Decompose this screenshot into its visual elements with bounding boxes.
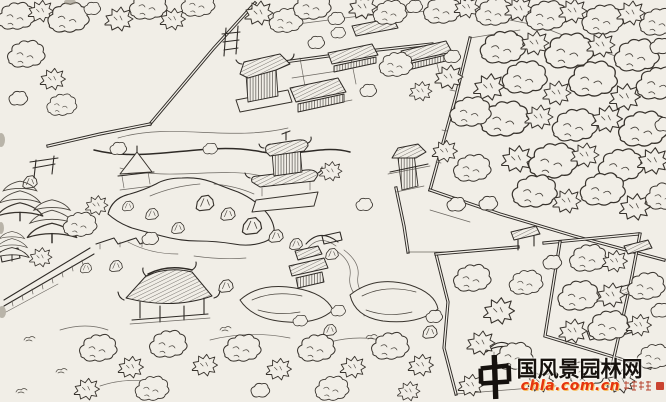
tree xyxy=(512,175,557,207)
tree xyxy=(105,7,133,31)
east-tower xyxy=(388,144,430,192)
grass-tuft xyxy=(220,327,231,332)
rock xyxy=(122,201,133,211)
tree xyxy=(454,264,492,291)
tree xyxy=(467,331,495,355)
tree xyxy=(349,0,377,19)
tree xyxy=(650,38,666,53)
torii-gate xyxy=(30,156,58,178)
pine-tree xyxy=(0,231,29,261)
tree xyxy=(331,27,346,38)
tree xyxy=(408,354,433,376)
tree xyxy=(454,154,492,181)
tree xyxy=(479,196,498,210)
tree xyxy=(142,232,159,244)
rockery xyxy=(23,176,438,339)
rock xyxy=(242,218,261,235)
rock xyxy=(110,260,123,271)
tree xyxy=(331,305,346,316)
trees-right-forest xyxy=(474,31,666,220)
tree xyxy=(360,84,377,96)
tree xyxy=(328,12,345,24)
zhong-logo-icon xyxy=(473,352,517,401)
tree xyxy=(84,2,101,14)
rock-mound xyxy=(350,282,438,322)
tree xyxy=(9,91,28,105)
garden-sketch-page: 国风景园林网 chla.com.cn xyxy=(0,0,666,402)
tree xyxy=(447,197,466,211)
grass-tuft xyxy=(56,369,67,374)
main-pavilion xyxy=(245,131,322,212)
tree xyxy=(30,248,52,267)
tree xyxy=(558,281,599,311)
tree xyxy=(308,36,325,48)
tree xyxy=(379,52,413,76)
tree xyxy=(356,198,373,210)
pine-tree xyxy=(0,181,43,221)
tree xyxy=(135,376,169,400)
tree xyxy=(372,332,410,359)
tree xyxy=(251,383,270,397)
tree xyxy=(636,67,666,99)
watermark-text: 国风景园林网 chla.com.cn xyxy=(517,359,664,395)
tree xyxy=(340,356,365,378)
tree xyxy=(502,61,547,93)
tree xyxy=(502,146,533,172)
tree xyxy=(559,319,587,343)
tree xyxy=(602,250,627,272)
tree xyxy=(63,212,97,236)
gate-tower-left xyxy=(236,54,294,112)
rock xyxy=(290,238,303,249)
tree xyxy=(74,378,99,400)
tree xyxy=(588,311,629,341)
site-watermark: 国风景园林网 chla.com.cn xyxy=(474,353,664,401)
tree xyxy=(525,105,553,129)
tree xyxy=(552,109,597,141)
tree xyxy=(373,0,407,24)
grass-tuft xyxy=(16,389,27,394)
tree xyxy=(597,283,625,307)
tree xyxy=(224,334,262,361)
rock xyxy=(219,280,233,293)
rock-mound xyxy=(240,287,333,323)
tree xyxy=(181,0,215,16)
tree xyxy=(40,68,65,90)
site-name-text: 国风景园林网 xyxy=(517,359,664,381)
tree xyxy=(294,0,332,19)
rock xyxy=(172,222,185,233)
tree xyxy=(192,354,217,376)
tree xyxy=(509,270,543,294)
tree xyxy=(298,334,336,361)
tree xyxy=(543,81,571,105)
tree xyxy=(266,358,291,380)
rock xyxy=(80,263,91,273)
tree xyxy=(320,162,342,181)
tree xyxy=(203,143,218,154)
tree xyxy=(398,382,420,401)
tree xyxy=(80,334,118,361)
rock xyxy=(221,208,235,221)
tree xyxy=(8,40,46,67)
ground-contours xyxy=(60,70,470,386)
tree xyxy=(651,303,666,317)
tree xyxy=(432,140,457,162)
rock xyxy=(269,230,283,243)
tree xyxy=(245,1,273,25)
tree xyxy=(529,143,578,178)
tree xyxy=(570,244,608,271)
tree xyxy=(150,330,188,357)
tree xyxy=(110,142,127,154)
tree xyxy=(480,31,525,63)
tree xyxy=(580,173,625,205)
tree xyxy=(543,255,562,269)
tree xyxy=(315,376,349,400)
tree xyxy=(406,0,423,12)
small-shrine xyxy=(289,246,328,288)
tree xyxy=(118,356,143,378)
red-square-stamp xyxy=(656,382,664,390)
tree xyxy=(86,196,108,215)
rock xyxy=(23,176,37,189)
rock xyxy=(196,195,214,210)
rock xyxy=(146,208,159,219)
tree xyxy=(47,94,77,116)
tree xyxy=(410,82,432,101)
garden-drawing xyxy=(0,0,666,402)
water-pavilion xyxy=(118,262,220,324)
rock xyxy=(324,324,337,335)
tree xyxy=(646,182,666,209)
rock xyxy=(326,248,339,259)
trees-left xyxy=(0,40,97,266)
tree xyxy=(48,3,89,33)
rock xyxy=(423,326,437,339)
tree xyxy=(484,298,515,324)
red-seal-marks-icon xyxy=(623,380,653,392)
grass-tuft xyxy=(24,337,35,342)
